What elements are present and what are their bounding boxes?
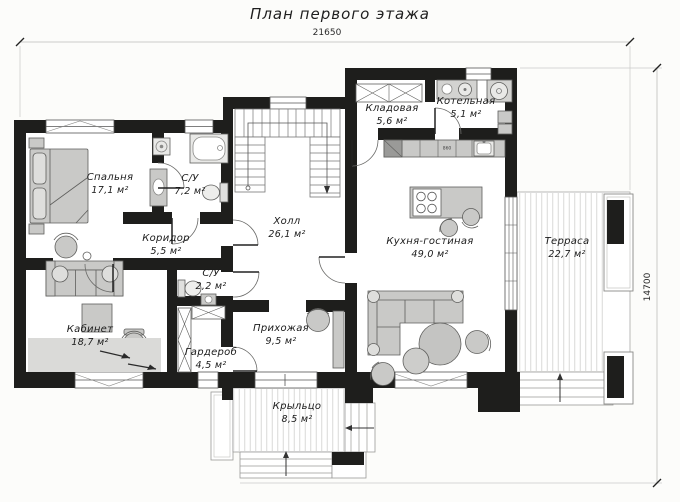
plan-title: План первого этажа <box>250 5 430 23</box>
storage-shelves <box>356 84 422 102</box>
bed <box>30 149 88 223</box>
terrace-door-window <box>505 197 517 310</box>
entry-cabinet <box>333 311 344 368</box>
room-label-corridor: Коридор5,5 м² <box>142 233 190 257</box>
window-stairwell <box>270 97 306 109</box>
terrace-post <box>607 356 624 398</box>
window-bathroom-1 <box>185 120 213 133</box>
window-kitchen <box>395 372 467 388</box>
terrace-post <box>607 200 624 244</box>
washing-machine <box>153 138 170 155</box>
floor-plan-canvas: План первого этажа 21650 14700 860 Спаль… <box>0 0 680 502</box>
small-sink <box>201 294 216 305</box>
room-label-boiler-room: Котельная5,1 м² <box>437 96 496 120</box>
dimension-height-label: 14700 <box>643 273 653 302</box>
window-office-small <box>198 372 218 388</box>
toilet-1 <box>203 183 229 202</box>
round-table-small <box>403 348 429 374</box>
room-label-bathroom-1: С/У7,2 м² <box>175 173 206 197</box>
office-sofa <box>46 261 123 296</box>
dimension-width-label: 21650 <box>313 28 342 38</box>
room-label-bedroom: Спальня17,1 м² <box>87 172 134 196</box>
room-label-bathroom-2: С/У2,2 м² <box>196 268 227 292</box>
window-bedroom <box>46 120 114 133</box>
room-label-wardrobe: Гардероб4,5 м² <box>185 347 237 371</box>
room-label-office: Кабинет18,7 м² <box>67 324 114 348</box>
room-label-entryway: Прихожая9,5 м² <box>253 323 309 347</box>
room-label-hall: Холл26,1 м² <box>268 216 305 240</box>
terrace-deck <box>517 192 633 405</box>
room-label-kitchen-living: Кухня-гостиная49,0 м² <box>386 236 473 260</box>
nightstand <box>29 138 44 148</box>
bathtub <box>190 134 228 163</box>
counter-size-label: 860 <box>443 147 452 152</box>
porch-post <box>345 388 373 403</box>
room-label-porch: Крыльцо8,5 м² <box>273 401 322 425</box>
room-label-terrace: Терраса22,7 м² <box>545 236 590 260</box>
window-office <box>75 372 143 388</box>
nightstand <box>29 224 44 234</box>
entrance-door <box>255 372 317 388</box>
window-boiler <box>466 68 491 80</box>
room-label-storage: Кладовая5,6 м² <box>365 103 418 127</box>
entry-armchair <box>307 309 330 332</box>
